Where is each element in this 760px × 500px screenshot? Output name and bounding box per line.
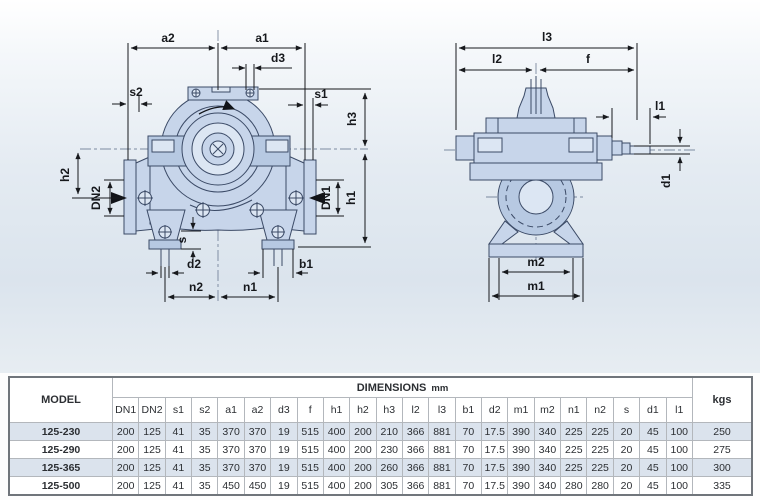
dim-cell-m1: 390 <box>508 441 534 459</box>
dim-cell-DN2: 125 <box>139 477 165 496</box>
dim-cell-d2: 17.5 <box>482 423 508 441</box>
table-row: 125-500200125413545045019515400200305366… <box>9 477 752 496</box>
dim-cell-h2: 200 <box>350 423 376 441</box>
dim-label-d3: d3 <box>271 51 285 65</box>
dim-label-m1: m1 <box>527 279 545 293</box>
dim-cell-d1: 45 <box>640 423 666 441</box>
dim-cell-s1: 41 <box>165 441 191 459</box>
dim-cell-d1: 45 <box>640 459 666 477</box>
dim-cell-m1: 390 <box>508 423 534 441</box>
dim-cell-s1: 41 <box>165 459 191 477</box>
dim-cell-s2: 35 <box>192 477 218 496</box>
dim-cell-h1: 400 <box>323 477 349 496</box>
dim-columns-row: DN1DN2s1s2a1a2d3fh1h2h3l2l3b1d2m1m2n1n2s… <box>9 398 752 423</box>
dim-cell-l1: 100 <box>666 459 692 477</box>
dim-cell-l3: 881 <box>429 477 455 496</box>
dim-column-header-m2: m2 <box>534 398 560 423</box>
table-header: MODEL DIMENSIONSmm kgs DN1DN2s1s2a1a2d3f… <box>9 377 752 423</box>
dim-column-header-a2: a2 <box>244 398 270 423</box>
dim-label-h3: h3 <box>345 112 359 126</box>
dim-cell-a1: 450 <box>218 477 244 496</box>
dim-cell-s2: 35 <box>192 423 218 441</box>
dim-cell-m2: 340 <box>534 477 560 496</box>
dim-label-l2: l2 <box>492 52 502 66</box>
model-cell: 125-230 <box>9 423 113 441</box>
table-row: 125-290200125413537037019515400200230366… <box>9 441 752 459</box>
table-row: 125-365200125413537037019515400200260366… <box>9 459 752 477</box>
dim-label-b1: b1 <box>299 257 313 271</box>
dim-cell-h1: 400 <box>323 441 349 459</box>
dim-cell-m2: 340 <box>534 423 560 441</box>
dim-column-header-l1: l1 <box>666 398 692 423</box>
dim-cell-b1: 70 <box>455 477 481 496</box>
dim-column-header-f: f <box>297 398 323 423</box>
dim-label-f: f <box>586 52 591 66</box>
dim-cell-s: 20 <box>613 423 639 441</box>
dim-column-header-DN2: DN2 <box>139 398 165 423</box>
dim-cell-l1: 100 <box>666 441 692 459</box>
dim-cell-l2: 366 <box>402 423 428 441</box>
dim-cell-b1: 70 <box>455 441 481 459</box>
dim-cell-DN1: 200 <box>113 423 139 441</box>
dim-cell-n2: 280 <box>587 477 613 496</box>
dim-cell-l3: 881 <box>429 423 455 441</box>
dim-column-header-l3: l3 <box>429 398 455 423</box>
dim-cell-a2: 370 <box>244 459 270 477</box>
dim-column-header-h1: h1 <box>323 398 349 423</box>
dim-cell-b1: 70 <box>455 459 481 477</box>
dim-cell-l3: 881 <box>429 441 455 459</box>
weight-header-cell: kgs <box>693 377 753 423</box>
dim-cell-n2: 225 <box>587 423 613 441</box>
dim-cell-h3: 230 <box>376 441 402 459</box>
dim-label-s1: s1 <box>314 87 328 101</box>
drawing-area: a2 a1 d3 s2 s1 h3 h1 h2 <box>0 0 760 373</box>
dim-cell-d2: 17.5 <box>482 477 508 496</box>
dim-cell-l3: 881 <box>429 459 455 477</box>
dim-cell-f: 515 <box>297 423 323 441</box>
dimensions-table: MODEL DIMENSIONSmm kgs DN1DN2s1s2a1a2d3f… <box>8 376 753 496</box>
dim-cell-DN1: 200 <box>113 477 139 496</box>
dim-column-header-s1: s1 <box>165 398 191 423</box>
dim-cell-DN2: 125 <box>139 441 165 459</box>
dim-label-dn2: DN2 <box>89 186 103 210</box>
dim-cell-DN2: 125 <box>139 423 165 441</box>
dim-cell-h2: 200 <box>350 441 376 459</box>
dim-cell-a1: 370 <box>218 441 244 459</box>
dim-label-h2: h2 <box>58 168 72 182</box>
model-header-cell: MODEL <box>9 377 113 423</box>
dim-cell-d2: 17.5 <box>482 459 508 477</box>
pump-side-view <box>444 63 695 265</box>
dim-label-a2: a2 <box>161 31 175 45</box>
weight-cell: 335 <box>693 477 753 496</box>
dim-label-l1: l1 <box>655 99 665 113</box>
dim-cell-d3: 19 <box>271 477 297 496</box>
dim-column-header-h2: h2 <box>350 398 376 423</box>
dim-column-header-l2: l2 <box>402 398 428 423</box>
dim-column-header-n2: n2 <box>587 398 613 423</box>
model-cell: 125-500 <box>9 477 113 496</box>
dim-column-header-m1: m1 <box>508 398 534 423</box>
dim-column-header-s2: s2 <box>192 398 218 423</box>
dim-cell-m1: 390 <box>508 459 534 477</box>
dim-cell-l2: 366 <box>402 441 428 459</box>
dim-column-header-d2: d2 <box>482 398 508 423</box>
dim-label-h1: h1 <box>344 191 358 205</box>
dim-label-dn1: DN1 <box>319 186 333 210</box>
dim-cell-DN1: 200 <box>113 459 139 477</box>
dim-cell-h1: 400 <box>323 423 349 441</box>
dim-label-m2: m2 <box>527 255 545 269</box>
pump-front-view <box>80 30 368 301</box>
dim-cell-a2: 370 <box>244 423 270 441</box>
weight-cell: 300 <box>693 459 753 477</box>
model-cell: 125-365 <box>9 459 113 477</box>
dim-cell-l1: 100 <box>666 423 692 441</box>
dimensions-unit-label: mm <box>431 383 448 394</box>
dim-cell-s2: 35 <box>192 441 218 459</box>
dim-label-a1: a1 <box>255 31 269 45</box>
dim-cell-a1: 370 <box>218 423 244 441</box>
dim-cell-m1: 390 <box>508 477 534 496</box>
dim-label-n2: n2 <box>189 280 203 294</box>
table-body: 125-230200125413537037019515400200210366… <box>9 423 752 496</box>
dim-cell-l2: 366 <box>402 459 428 477</box>
dim-cell-n2: 225 <box>587 459 613 477</box>
dim-column-header-a1: a1 <box>218 398 244 423</box>
dim-column-header-s: s <box>613 398 639 423</box>
dim-cell-d3: 19 <box>271 459 297 477</box>
dim-cell-s: 20 <box>613 441 639 459</box>
dim-cell-h3: 210 <box>376 423 402 441</box>
dim-cell-n2: 225 <box>587 441 613 459</box>
dim-cell-f: 515 <box>297 459 323 477</box>
dim-cell-h1: 400 <box>323 459 349 477</box>
dim-label-s: s <box>175 236 189 243</box>
dim-cell-h3: 260 <box>376 459 402 477</box>
table-row: 125-230200125413537037019515400200210366… <box>9 423 752 441</box>
dim-column-header-DN1: DN1 <box>113 398 139 423</box>
dim-cell-b1: 70 <box>455 423 481 441</box>
dim-cell-d1: 45 <box>640 477 666 496</box>
dim-column-header-h3: h3 <box>376 398 402 423</box>
dim-cell-d3: 19 <box>271 423 297 441</box>
dim-column-header-d1: d1 <box>640 398 666 423</box>
dimensions-header-cell: DIMENSIONSmm <box>113 377 693 398</box>
dimensions-table-area: MODEL DIMENSIONSmm kgs DN1DN2s1s2a1a2d3f… <box>0 373 760 500</box>
dim-cell-s2: 35 <box>192 459 218 477</box>
pump-dimension-drawing: a2 a1 d3 s2 s1 h3 h1 h2 <box>0 0 760 373</box>
dim-cell-l2: 366 <box>402 477 428 496</box>
dim-cell-d3: 19 <box>271 441 297 459</box>
dim-label-s2: s2 <box>129 85 143 99</box>
dim-cell-a2: 370 <box>244 441 270 459</box>
dim-cell-n1: 280 <box>561 477 587 496</box>
dim-cell-n1: 225 <box>561 459 587 477</box>
weight-cell: 250 <box>693 423 753 441</box>
dim-cell-DN2: 125 <box>139 459 165 477</box>
dim-cell-n1: 225 <box>561 423 587 441</box>
dim-cell-m2: 340 <box>534 441 560 459</box>
dim-cell-l1: 100 <box>666 477 692 496</box>
dim-cell-s: 20 <box>613 477 639 496</box>
dim-cell-h2: 200 <box>350 459 376 477</box>
dim-cell-f: 515 <box>297 477 323 496</box>
dim-label-n1: n1 <box>243 280 257 294</box>
dim-label-d2: d2 <box>187 257 201 271</box>
dim-cell-s1: 41 <box>165 477 191 496</box>
dim-cell-DN1: 200 <box>113 441 139 459</box>
dim-cell-s: 20 <box>613 459 639 477</box>
weight-cell: 275 <box>693 441 753 459</box>
dim-cell-n1: 225 <box>561 441 587 459</box>
dim-cell-a1: 370 <box>218 459 244 477</box>
model-cell: 125-290 <box>9 441 113 459</box>
dim-cell-d2: 17.5 <box>482 441 508 459</box>
dim-cell-a2: 450 <box>244 477 270 496</box>
dim-column-header-b1: b1 <box>455 398 481 423</box>
dim-label-d1: d1 <box>659 174 673 188</box>
dim-column-header-d3: d3 <box>271 398 297 423</box>
dim-cell-h3: 305 <box>376 477 402 496</box>
dim-column-header-n1: n1 <box>561 398 587 423</box>
dim-cell-m2: 340 <box>534 459 560 477</box>
pump-spec-sheet: a2 a1 d3 s2 s1 h3 h1 h2 <box>0 0 760 500</box>
dimensions-header-label: DIMENSIONS <box>357 382 427 394</box>
dim-cell-s1: 41 <box>165 423 191 441</box>
dim-cell-h2: 200 <box>350 477 376 496</box>
dim-cell-f: 515 <box>297 441 323 459</box>
dim-label-l3: l3 <box>542 30 552 44</box>
dim-cell-d1: 45 <box>640 441 666 459</box>
